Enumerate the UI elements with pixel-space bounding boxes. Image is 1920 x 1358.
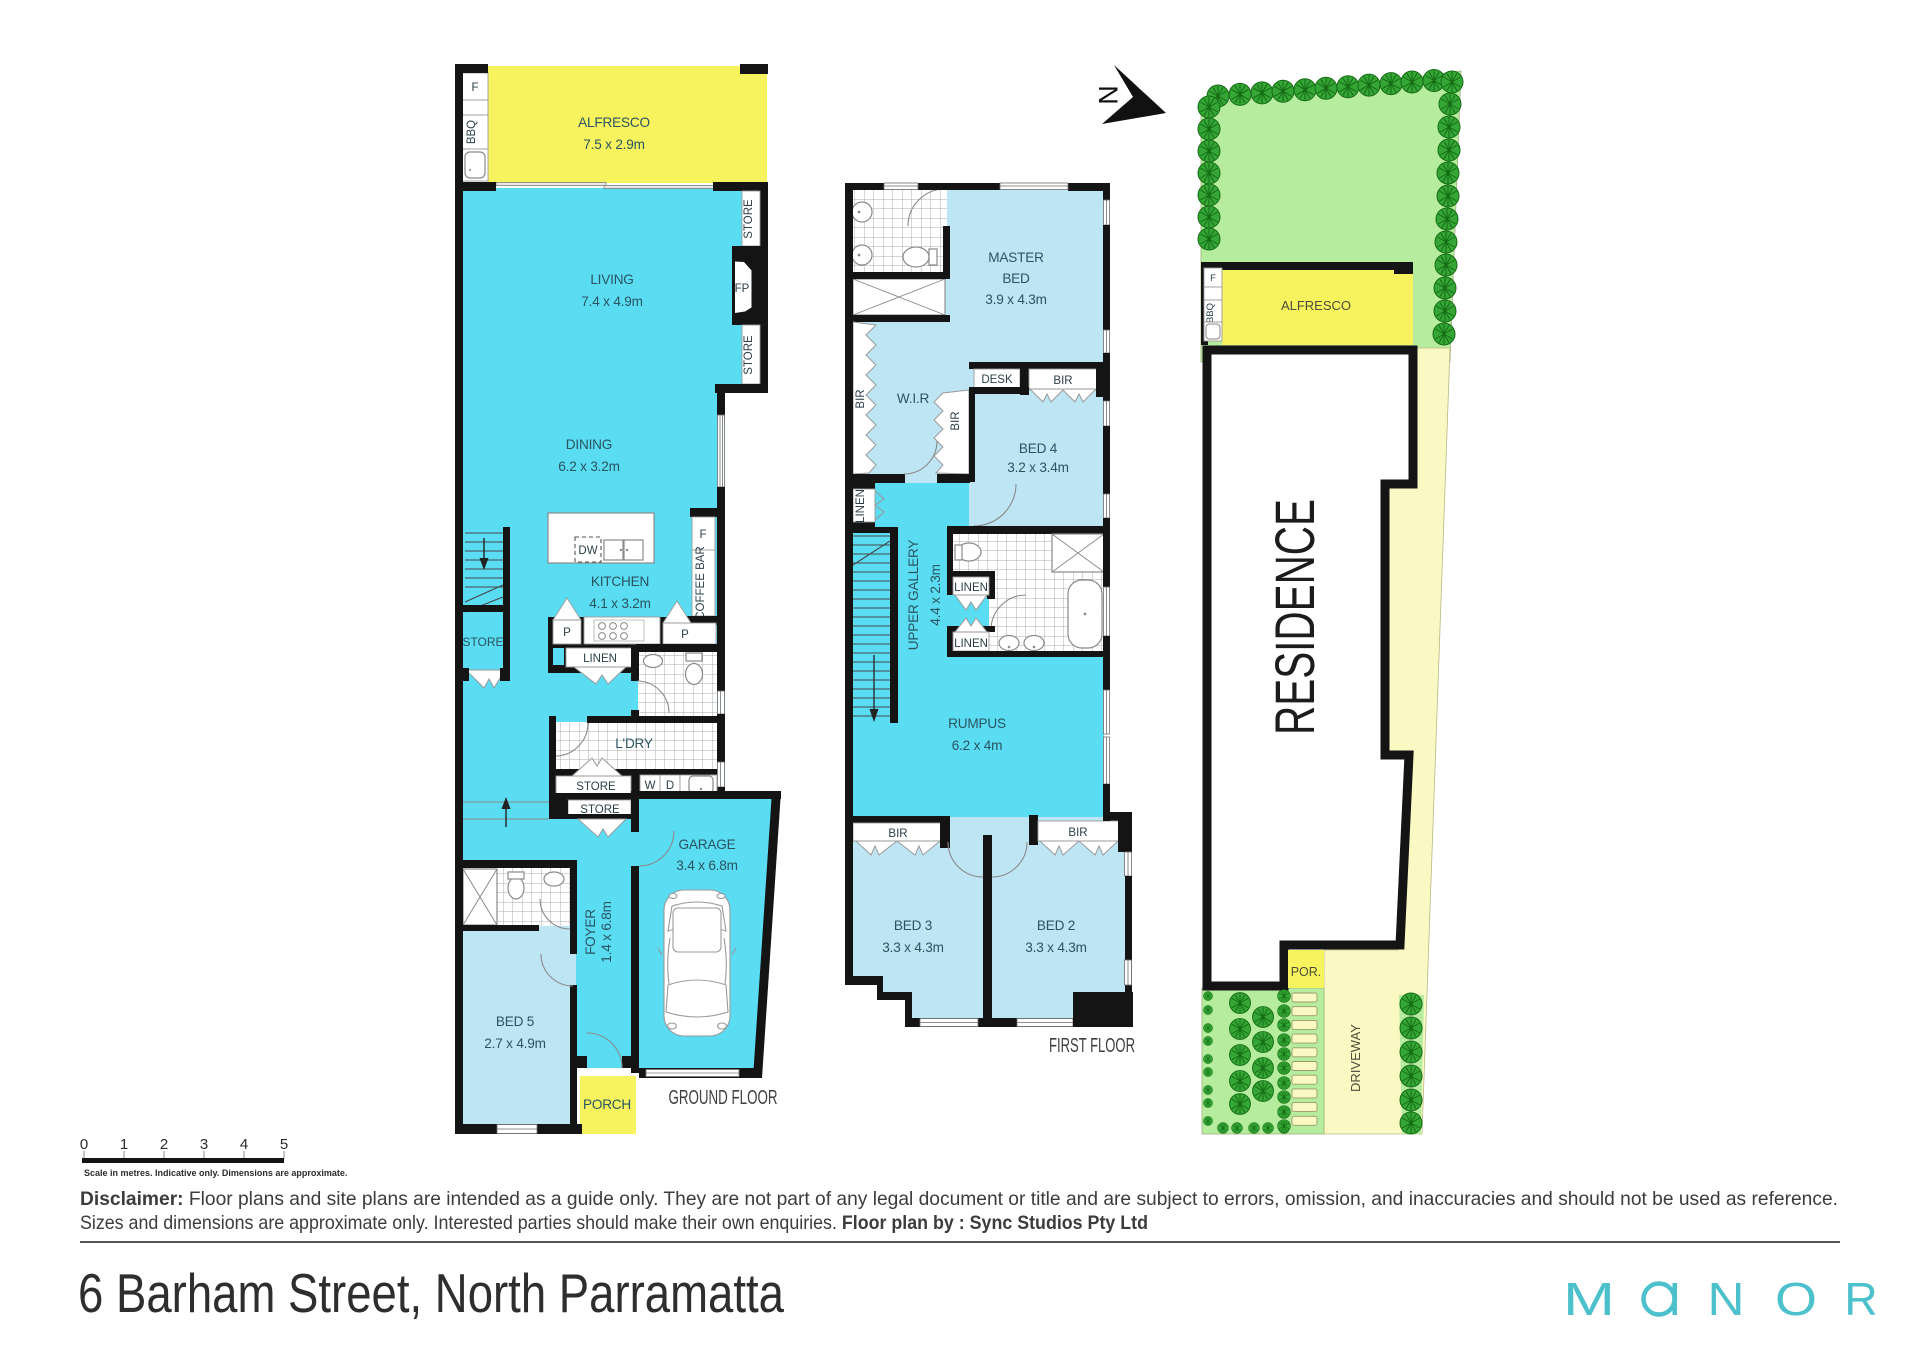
svg-text:L'DRY: L'DRY [615, 736, 653, 751]
svg-text:BIR: BIR [1053, 375, 1072, 387]
svg-text:3.3 x 4.3m: 3.3 x 4.3m [1025, 940, 1086, 955]
svg-text:W.I.R: W.I.R [897, 391, 930, 406]
svg-text:GARAGE: GARAGE [679, 837, 736, 852]
svg-text:STORE: STORE [576, 781, 616, 793]
svg-text:N: N [1708, 1273, 1745, 1325]
svg-text:6.2 x 4m: 6.2 x 4m [952, 738, 1003, 753]
svg-text:BBQ: BBQ [466, 120, 478, 144]
svg-text:BED: BED [1002, 271, 1030, 286]
svg-text:FOYER: FOYER [583, 909, 598, 955]
svg-text:F: F [1210, 273, 1216, 284]
svg-text:F: F [471, 82, 478, 94]
svg-text:W: W [645, 780, 656, 792]
svg-text:3.9 x 4.3m: 3.9 x 4.3m [985, 292, 1046, 307]
svg-text:5: 5 [280, 1136, 288, 1153]
svg-text:BED 5: BED 5 [496, 1014, 534, 1029]
svg-text:BED 4: BED 4 [1019, 441, 1058, 456]
svg-text:DW: DW [578, 545, 597, 557]
svg-text:BIR: BIR [950, 411, 962, 430]
svg-text:4.4 x 2.3m: 4.4 x 2.3m [928, 564, 943, 625]
svg-text:STORE: STORE [743, 335, 755, 375]
svg-text:6.2 x 3.2m: 6.2 x 3.2m [558, 459, 619, 474]
svg-text:POR.: POR. [1291, 965, 1322, 979]
svg-text:KITCHEN: KITCHEN [591, 574, 649, 589]
svg-text:DRIVEWAY: DRIVEWAY [1348, 1024, 1363, 1092]
svg-text:1.4 x 6.8m: 1.4 x 6.8m [599, 901, 614, 962]
svg-text:3.3 x 4.3m: 3.3 x 4.3m [882, 940, 943, 955]
svg-text:FIRST FLOOR: FIRST FLOOR [1049, 1035, 1135, 1057]
svg-text:7.4 x 4.9m: 7.4 x 4.9m [581, 294, 642, 309]
svg-text:COFFEE BAR: COFFEE BAR [695, 546, 707, 619]
svg-text:UPPER GALLERY: UPPER GALLERY [906, 540, 921, 651]
svg-text:D: D [666, 780, 674, 792]
svg-text:LINEN: LINEN [954, 638, 988, 650]
svg-text:BIR: BIR [855, 389, 867, 408]
svg-text:7.5 x 2.9m: 7.5 x 2.9m [583, 137, 644, 152]
svg-text:0: 0 [80, 1136, 88, 1153]
svg-text:BBQ: BBQ [1205, 303, 1216, 323]
svg-text:STORE: STORE [743, 199, 755, 239]
svg-text:LINEN: LINEN [954, 582, 988, 594]
svg-text:BIR: BIR [1068, 827, 1087, 839]
svg-text:RESIDENCE: RESIDENCE [1263, 499, 1326, 735]
svg-text:PORCH: PORCH [583, 1097, 631, 1112]
svg-text:P: P [563, 627, 571, 639]
svg-text:O: O [1775, 1273, 1817, 1325]
svg-text:R: R [1844, 1273, 1877, 1325]
svg-text:DESK: DESK [981, 374, 1013, 386]
svg-text:DINING: DINING [566, 437, 612, 452]
svg-text:4: 4 [240, 1136, 248, 1153]
svg-text:MASTER: MASTER [988, 250, 1044, 265]
svg-text:4.1 x 3.2m: 4.1 x 3.2m [589, 596, 650, 611]
svg-text:3.4 x 6.8m: 3.4 x 6.8m [676, 858, 737, 873]
svg-text:Scale in metres. Indicative on: Scale in metres. Indicative only. Dimens… [84, 1168, 347, 1178]
svg-text:3: 3 [200, 1136, 208, 1153]
svg-text:3.2 x 3.4m: 3.2 x 3.4m [1007, 460, 1068, 475]
svg-text:ALFRESCO: ALFRESCO [578, 115, 650, 130]
svg-text:Sizes and dimensions are appro: Sizes and dimensions are approximate onl… [80, 1212, 1148, 1234]
svg-text:M: M [1563, 1273, 1615, 1325]
svg-text:STORE: STORE [462, 635, 503, 649]
svg-text:LINEN: LINEN [855, 489, 867, 523]
svg-text:RUMPUS: RUMPUS [948, 716, 1006, 731]
svg-text:P: P [681, 629, 689, 641]
svg-text:GROUND FLOOR: GROUND FLOOR [669, 1087, 778, 1109]
svg-text:1: 1 [120, 1136, 128, 1153]
svg-text:BED 3: BED 3 [894, 918, 932, 933]
svg-text:LIVING: LIVING [590, 272, 633, 287]
svg-text:ALFRESCO: ALFRESCO [1281, 298, 1351, 313]
svg-text:LINEN: LINEN [583, 653, 617, 665]
svg-text:Disclaimer: Floor plans and si: Disclaimer: Floor plans and site plans a… [80, 1188, 1838, 1210]
svg-text:BED 2: BED 2 [1037, 918, 1075, 933]
svg-text:N: N [1093, 85, 1123, 105]
svg-text:FP: FP [735, 283, 750, 295]
svg-text:6 Barham Street, North Parrama: 6 Barham Street, North Parramatta [78, 1262, 784, 1324]
svg-text:BIR: BIR [888, 828, 907, 840]
svg-text:2.7 x 4.9m: 2.7 x 4.9m [484, 1036, 545, 1051]
svg-text:2: 2 [160, 1136, 168, 1153]
svg-text:F: F [699, 529, 706, 541]
